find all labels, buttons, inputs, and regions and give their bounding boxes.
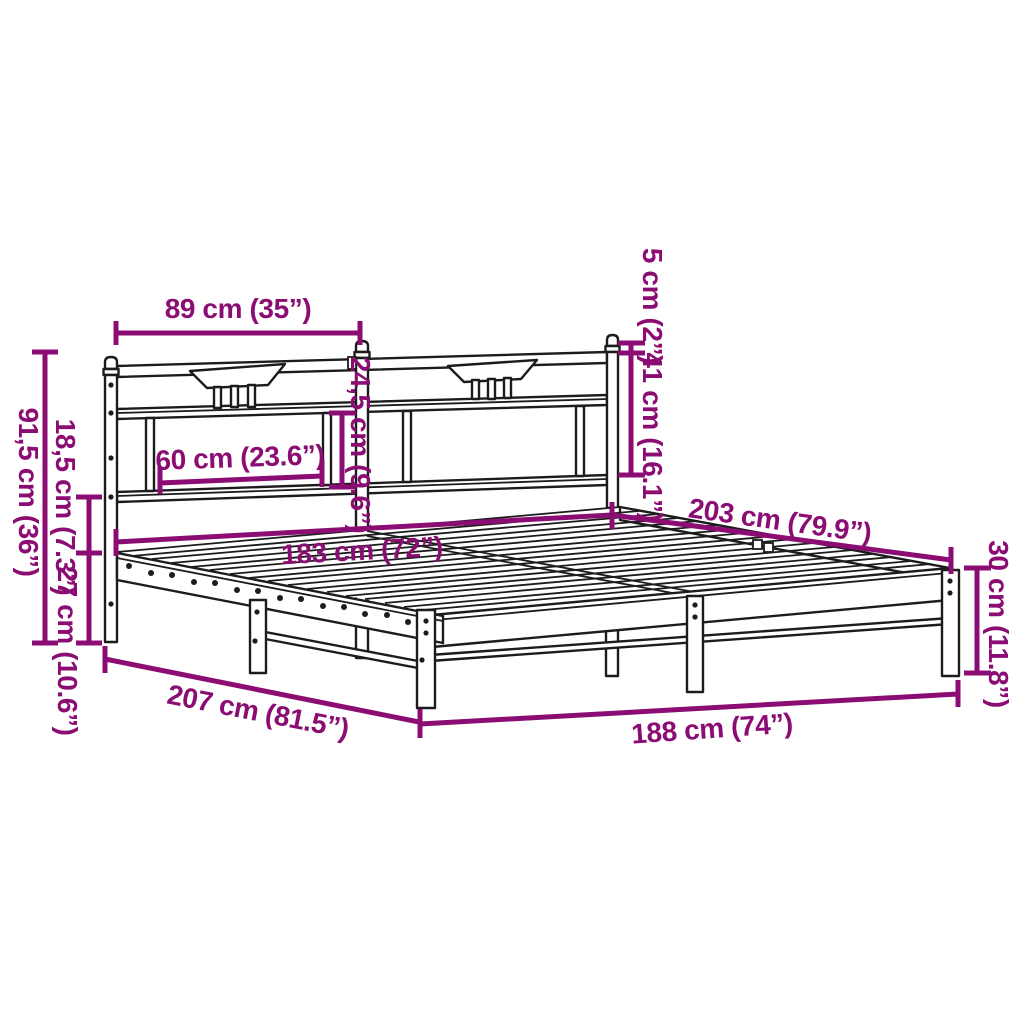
foot-front-leg	[417, 610, 435, 708]
bed-frame-dimension-diagram: 89 cm (35”) 60 cm (23.6”) 24,5 cm (9.6”)…	[0, 0, 1024, 1024]
dim-label-headboard-section-width: 89 cm (35”)	[165, 295, 312, 323]
headboard-post-left	[104, 357, 119, 642]
headboard-panel-bar	[146, 418, 154, 491]
dimline-89	[116, 321, 360, 345]
foot-back-leg	[942, 570, 959, 676]
headboard-panel-bar	[576, 406, 584, 476]
front-stretcher	[260, 631, 418, 668]
slat-connector	[753, 540, 762, 549]
dim-label-headboard-panel-opening-height: 24,5 cm (9.6”)	[346, 357, 374, 534]
foot-center-leg	[687, 596, 703, 692]
headboard-post-right	[606, 335, 620, 508]
dim-label-headboard-upper-height: 41 cm (16.1”)	[638, 352, 666, 521]
bed-frame-line-drawing	[0, 0, 1024, 1024]
dim-label-headboard-total-height: 91,5 cm (36”)	[14, 407, 42, 576]
dim-label-headboard-panel-inner-width: 60 cm (23.6”)	[155, 441, 325, 475]
headboard-panel-bar	[403, 411, 411, 482]
dim-label-platform-height: 30 cm (11.8”)	[984, 540, 1012, 708]
dim-label-underbed-clearance: 27 cm (10.6”)	[53, 566, 81, 735]
dim-label-post-cap-height: 5 cm (2”)	[638, 248, 666, 364]
front-middle-leg	[250, 600, 266, 673]
slat-connector	[764, 543, 773, 552]
